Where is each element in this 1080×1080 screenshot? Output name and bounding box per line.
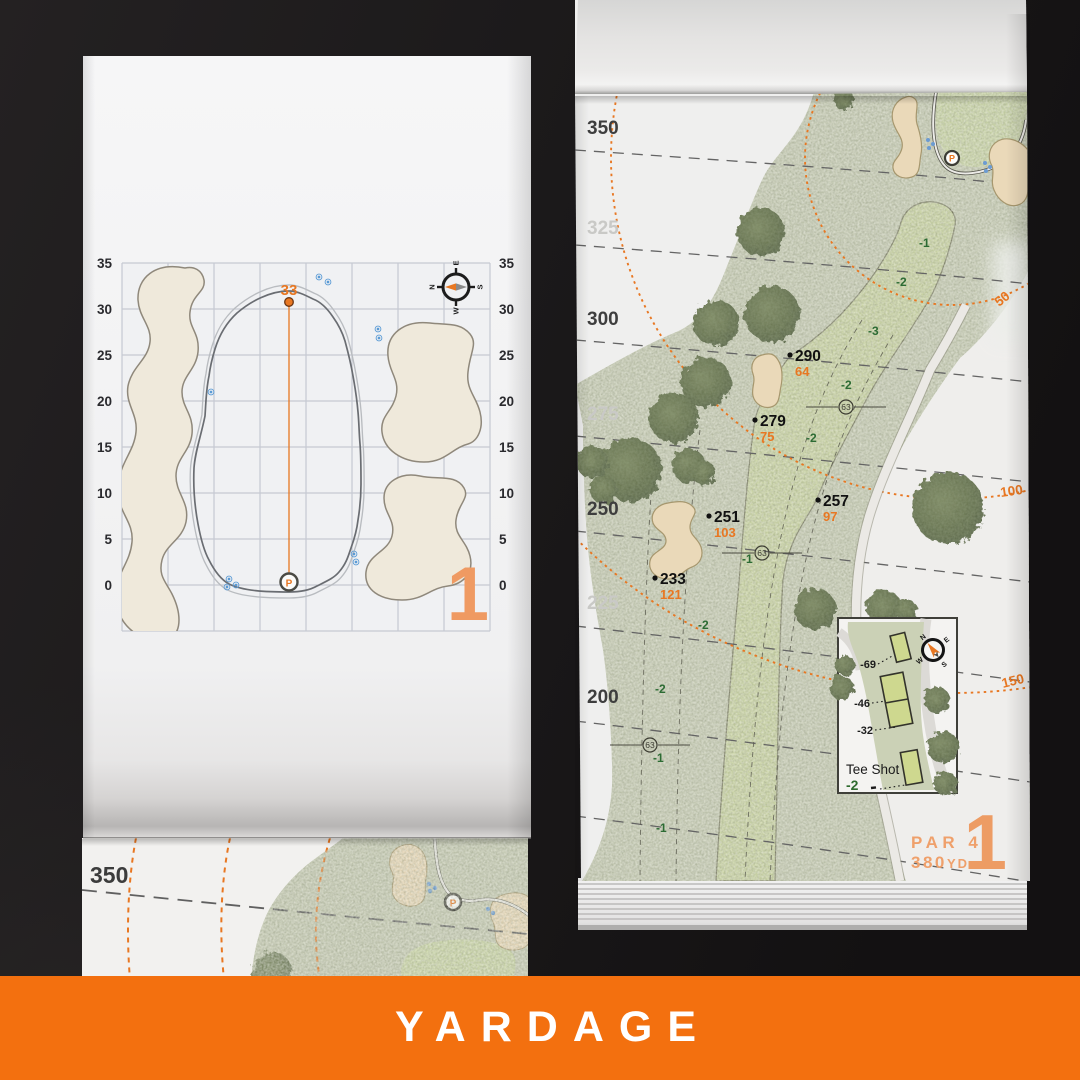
svg-text:33: 33 [281, 282, 298, 299]
svg-text:-2: -2 [896, 275, 907, 289]
svg-text:63: 63 [841, 402, 851, 412]
svg-text:380: 380 [911, 853, 947, 872]
svg-text:1: 1 [964, 798, 1007, 886]
svg-text:103: 103 [714, 525, 736, 540]
svg-text:N: N [428, 284, 437, 289]
svg-text:325: 325 [587, 218, 619, 239]
svg-text:Tee Shot: Tee Shot [846, 762, 900, 777]
svg-text:1: 1 [447, 552, 489, 637]
svg-text:275: 275 [587, 404, 619, 425]
svg-text:75: 75 [760, 429, 774, 444]
svg-text:0: 0 [104, 578, 112, 593]
svg-text:63: 63 [645, 740, 655, 750]
svg-text:290: 290 [795, 348, 821, 365]
svg-text:279: 279 [760, 413, 786, 430]
svg-text:97: 97 [823, 509, 837, 524]
svg-text:20: 20 [97, 394, 112, 409]
svg-text:-1: -1 [919, 236, 930, 250]
svg-text:-2: -2 [806, 431, 817, 445]
svg-text:S: S [476, 284, 485, 289]
svg-text:35: 35 [97, 256, 113, 271]
svg-text:0: 0 [499, 578, 507, 593]
svg-text:-69: -69 [860, 659, 876, 671]
svg-text:25: 25 [97, 348, 113, 363]
svg-text:251: 251 [714, 509, 740, 526]
svg-text:63: 63 [757, 548, 767, 558]
svg-text:10: 10 [97, 486, 112, 501]
svg-text:121: 121 [660, 587, 682, 602]
svg-text:200: 200 [587, 687, 619, 708]
svg-text:W: W [452, 307, 461, 315]
svg-text:-1: -1 [653, 751, 664, 765]
svg-text:P: P [949, 154, 955, 164]
svg-text:15: 15 [97, 440, 113, 455]
svg-text:YARDAGE: YARDAGE [395, 1003, 711, 1051]
svg-text:300: 300 [587, 309, 619, 330]
svg-text:-3: -3 [868, 324, 879, 338]
svg-text:E: E [452, 260, 461, 265]
svg-text:233: 233 [660, 571, 686, 588]
svg-text:225: 225 [587, 593, 619, 614]
svg-text:-46: -46 [854, 698, 870, 710]
svg-text:-2: -2 [655, 682, 666, 696]
svg-text:-1: -1 [742, 552, 753, 566]
svg-text:-32: -32 [857, 725, 873, 737]
svg-text:257: 257 [823, 493, 849, 510]
svg-text:64: 64 [795, 364, 810, 379]
svg-text:5: 5 [104, 532, 112, 547]
svg-text:-2: -2 [698, 618, 709, 632]
svg-text:5: 5 [499, 532, 507, 547]
svg-text:-1: -1 [656, 821, 667, 835]
svg-text:350: 350 [90, 862, 128, 888]
svg-text:250: 250 [587, 499, 619, 520]
svg-text:350: 350 [587, 118, 619, 139]
svg-text:P: P [286, 579, 293, 590]
svg-text:30: 30 [97, 302, 112, 317]
svg-text:-2: -2 [841, 378, 852, 392]
svg-text:-2: -2 [846, 777, 859, 793]
